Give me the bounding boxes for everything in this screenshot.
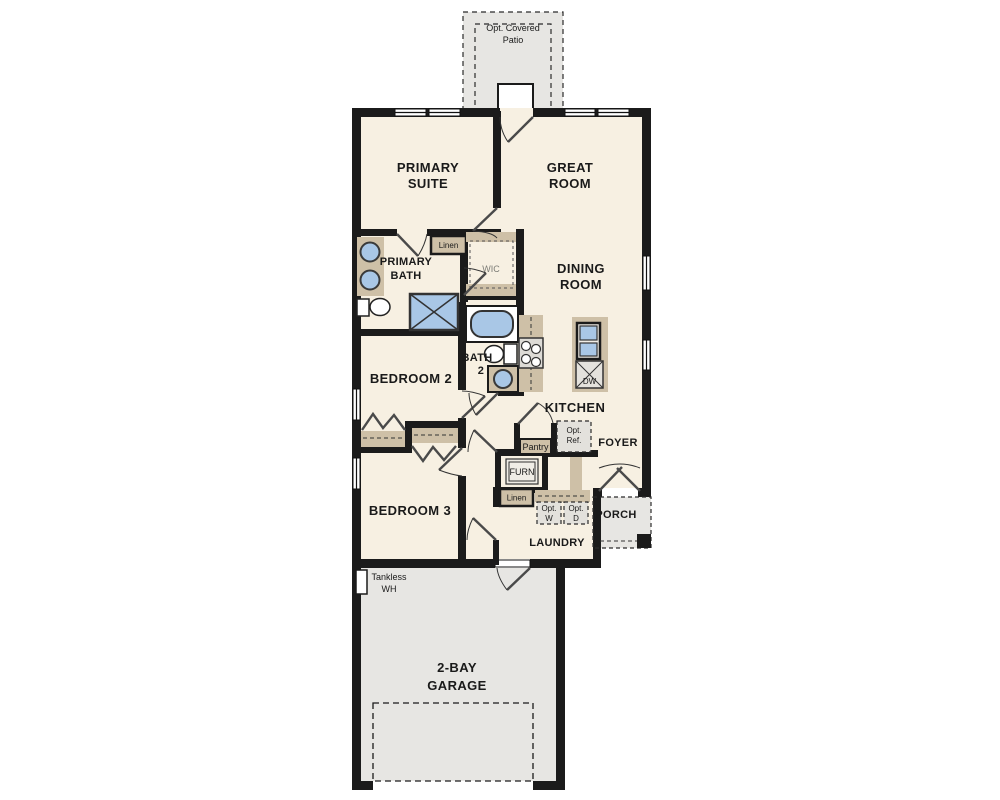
opt-ref-label-1: Opt.	[566, 426, 581, 435]
floor-plan-canvas: Opt. Covered Patio	[0, 0, 1000, 800]
optional-washer: Opt. W	[537, 502, 561, 524]
bath2-label-2: 2	[478, 365, 484, 377]
optional-refrigerator: Opt. Ref.	[557, 421, 591, 452]
window-bedroom3	[353, 458, 360, 489]
opt-w-label-2: W	[545, 514, 553, 523]
window-dining-2	[643, 340, 650, 370]
floor-plan: Opt. Covered Patio	[0, 0, 1000, 800]
foyer-label: FOYER	[598, 437, 637, 449]
toilet-icon	[370, 299, 390, 316]
linen-closet-bath: Linen	[431, 236, 466, 254]
opt-ref-label-2: Ref.	[567, 436, 582, 445]
bedroom2-label: BEDROOM 2	[370, 371, 452, 386]
tankless-wh-label-1: Tankless	[371, 572, 407, 582]
primary-suite-label-1: PRIMARY	[397, 160, 459, 175]
furnace: FURN	[506, 459, 538, 484]
island-sink-icon	[577, 323, 600, 359]
patio-label-1: Opt. Covered	[486, 23, 540, 33]
optional-dryer: Opt. D	[564, 502, 588, 524]
dw-label: DW	[583, 377, 597, 386]
bath2-label-1: BATH	[462, 352, 493, 364]
primary-bath-label-1: PRIMARY	[380, 256, 433, 268]
window-dining-1	[643, 256, 650, 290]
bathtub-icon	[471, 311, 513, 337]
great-room-label-2: ROOM	[549, 176, 591, 191]
garage-label-2: GARAGE	[427, 678, 486, 693]
great-room-label-1: GREAT	[547, 160, 594, 175]
linen-closet-hall: Linen	[500, 489, 533, 506]
patio-door-opening	[500, 108, 533, 117]
covered-patio: Opt. Covered Patio	[463, 12, 563, 112]
sink-icon	[494, 370, 512, 388]
laundry-label: LAUNDRY	[529, 537, 585, 549]
window-bedroom2	[353, 389, 360, 420]
garage-label-1: 2-BAY	[437, 660, 477, 675]
bedroom3-label: BEDROOM 3	[369, 503, 451, 518]
range-icon	[519, 338, 543, 368]
primary-bath-label-2: BATH	[391, 270, 422, 282]
patio-step	[498, 84, 533, 112]
toilet-tank	[357, 299, 369, 316]
dishwasher-icon: DW	[576, 361, 603, 388]
patio-label-2: Patio	[503, 35, 524, 45]
linen-hall-label: Linen	[507, 494, 527, 503]
opt-w-label-1: Opt.	[541, 504, 556, 513]
porch-column	[637, 534, 651, 548]
dining-room-label-1: DINING	[557, 261, 605, 276]
tankless-wh-label-2: WH	[382, 584, 397, 594]
sink-icon	[361, 243, 380, 262]
shower-icon	[410, 294, 458, 330]
opt-d-label-2: D	[573, 514, 579, 523]
tankless-water-heater-icon	[356, 570, 367, 594]
furn-label: FURN	[510, 467, 535, 477]
toilet-tank	[504, 344, 517, 364]
garage-entry-threshold	[495, 560, 530, 567]
primary-suite-label-2: SUITE	[408, 176, 448, 191]
opt-d-label-1: Opt.	[568, 504, 583, 513]
pantry: Pantry	[520, 439, 551, 454]
pantry-label: Pantry	[522, 442, 549, 452]
kitchen-label: KITCHEN	[545, 400, 606, 415]
dining-room-label-2: ROOM	[560, 277, 602, 292]
sink-icon	[361, 271, 380, 290]
linen-bath-label: Linen	[439, 241, 459, 250]
porch-label: PORCH	[595, 509, 636, 521]
